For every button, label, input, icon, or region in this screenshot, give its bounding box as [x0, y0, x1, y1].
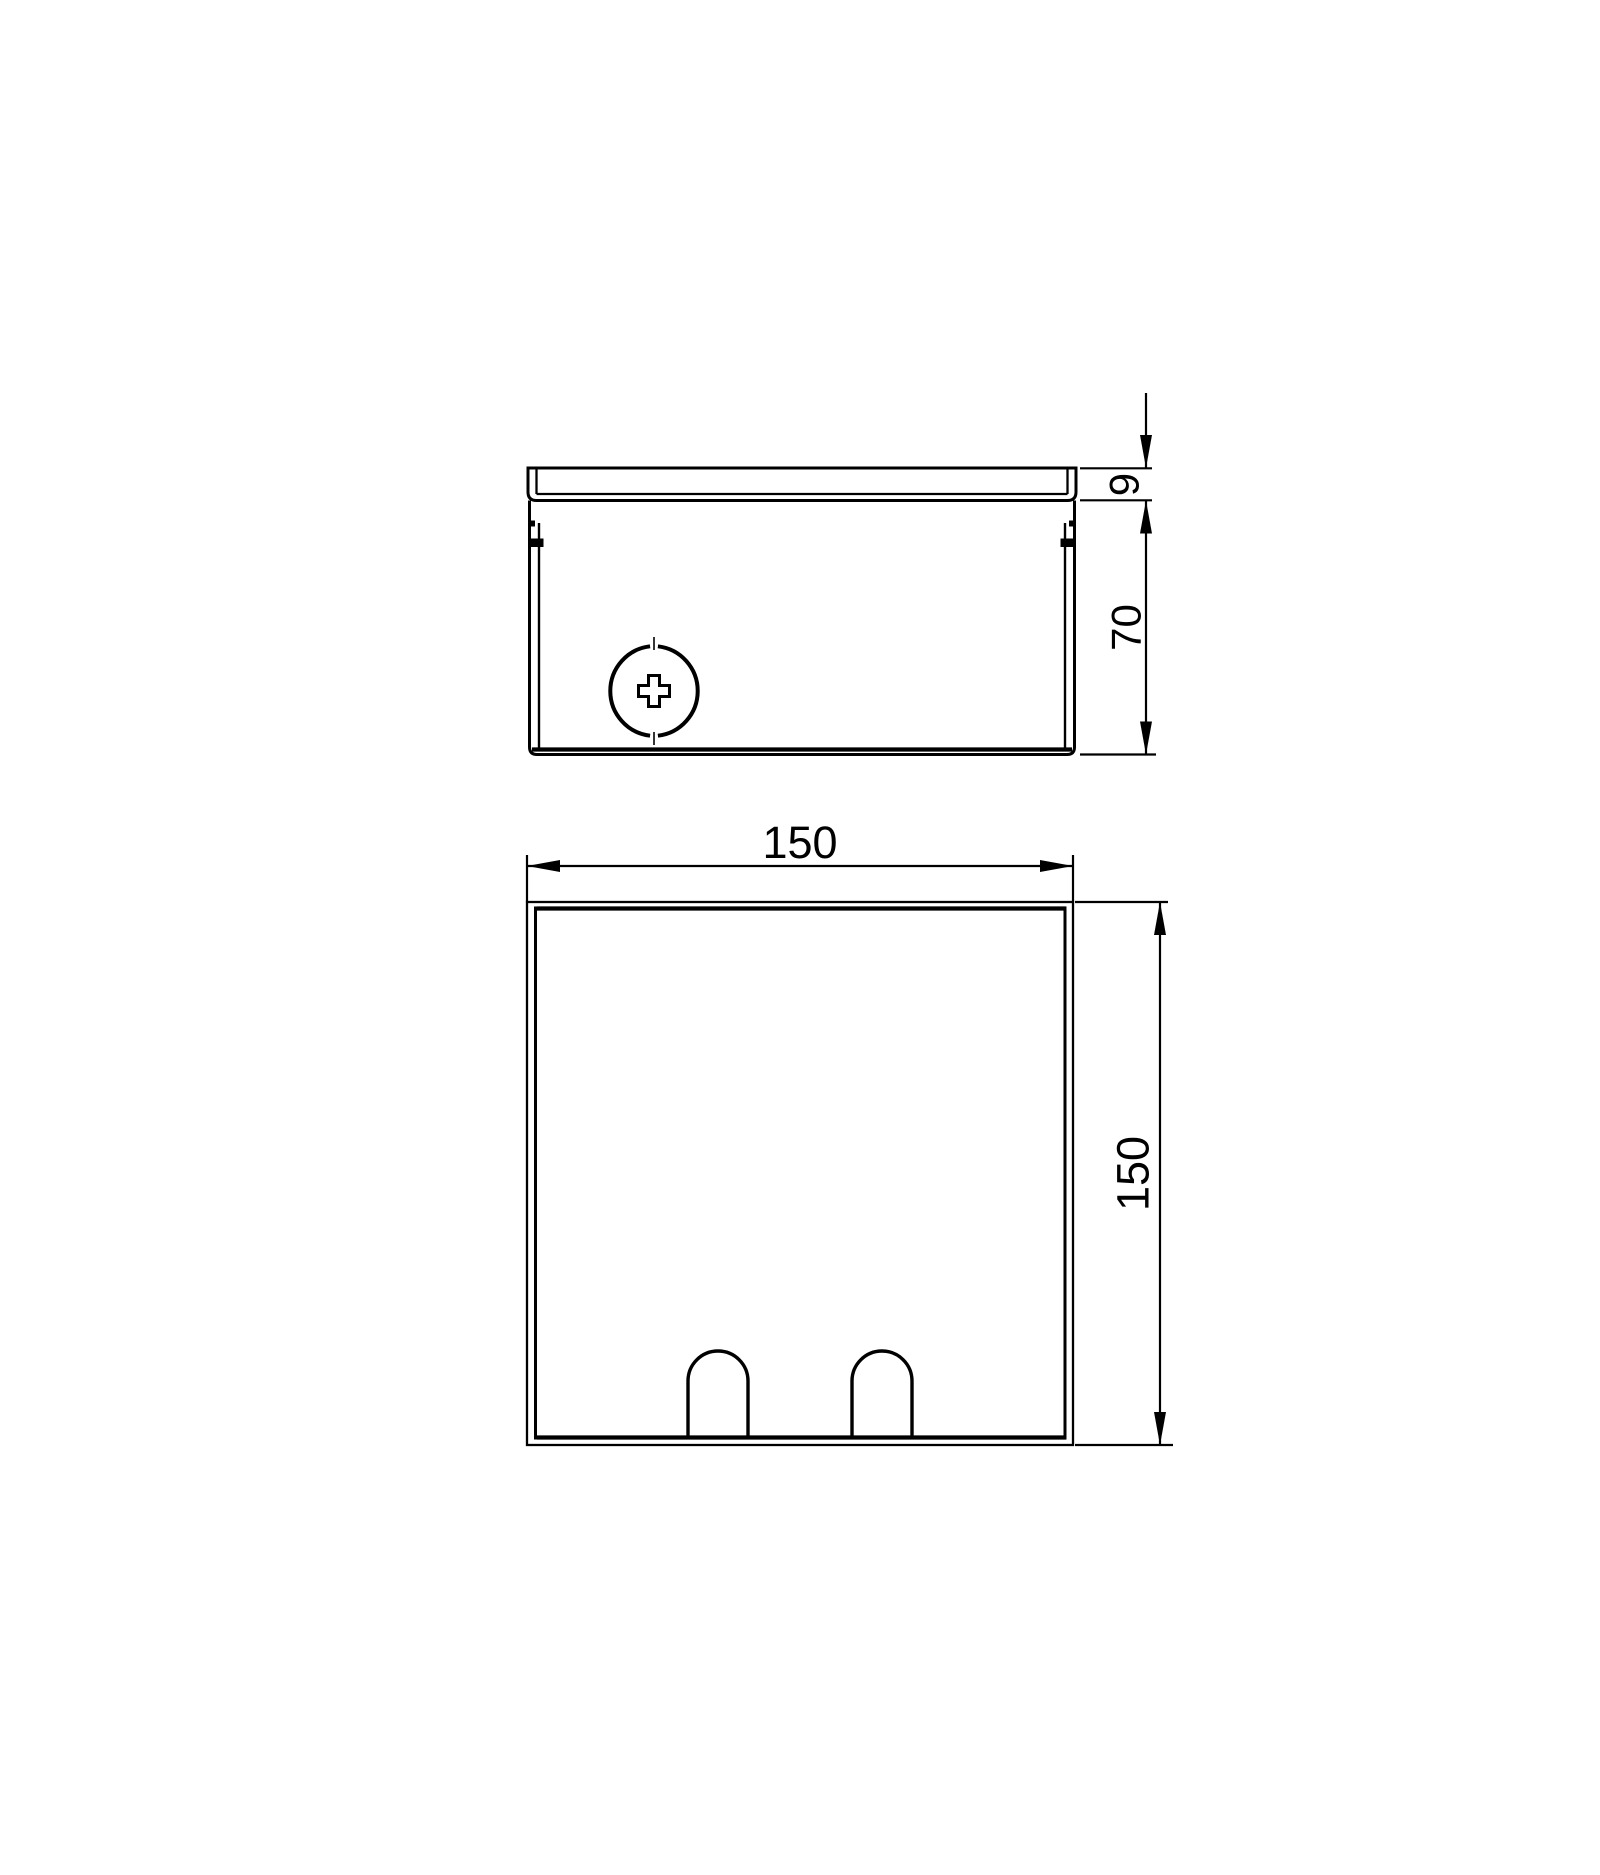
wall-tab-top-right — [1069, 521, 1075, 527]
dim-label-70: 70 — [1103, 604, 1150, 651]
wall-clip-left — [530, 539, 544, 548]
wall-tab-top-left — [530, 521, 536, 527]
drawing-sheet: 9 70 150 — [0, 0, 1600, 1875]
sheet-background — [0, 0, 1600, 1875]
dim-label-width-150: 150 — [762, 817, 837, 868]
technical-drawing: 9 70 150 — [0, 0, 1600, 1875]
dim-label-9: 9 — [1101, 473, 1148, 496]
wall-clip-right — [1061, 539, 1075, 548]
dim-label-depth-150: 150 — [1108, 1136, 1159, 1211]
